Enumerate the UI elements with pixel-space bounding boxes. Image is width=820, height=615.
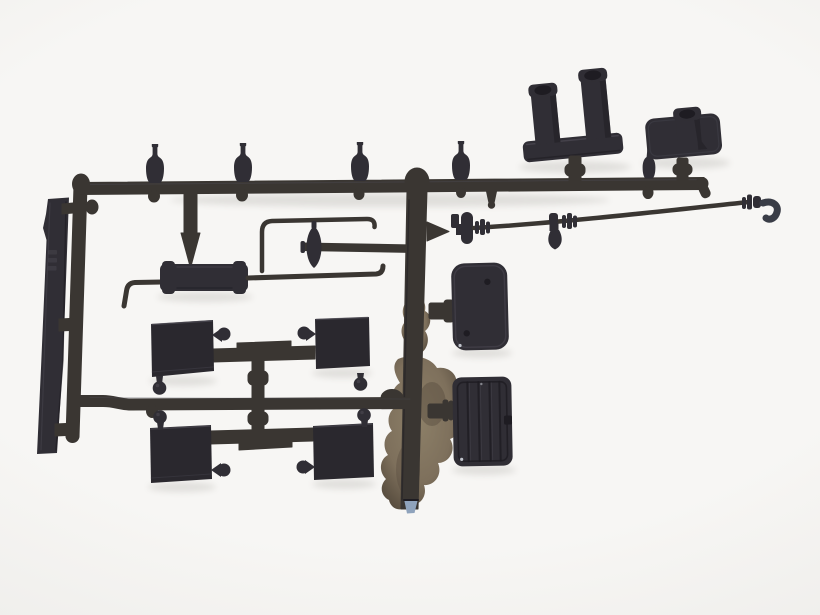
mid-assembly — [124, 219, 415, 306]
runner-left-knob — [73, 174, 90, 194]
single-post-mount — [644, 105, 723, 160]
teardrop-knobs — [211, 460, 315, 477]
photo-model-kit-sprue: Photograph of a dark grey injection-moul… — [0, 0, 820, 615]
strip-tab-top — [62, 202, 84, 214]
side-notch — [504, 415, 512, 424]
strip-tab-bottom — [55, 423, 77, 436]
straight-rod — [248, 266, 383, 278]
ring-coupler-b — [562, 213, 577, 229]
ring-coupler-a — [475, 219, 490, 235]
mudflap-plate-left — [151, 320, 214, 377]
bar-ridge — [237, 341, 291, 351]
mudflap-pair-upper — [151, 317, 370, 399]
sprue-photo-canvas: Photograph of a dark grey injection-moul… — [0, 0, 820, 615]
gate-bulge — [248, 371, 268, 385]
runner-dome-head — [405, 168, 429, 196]
mudflap-plate-left — [150, 425, 212, 483]
teardrop-knobs — [212, 327, 316, 343]
thin-rod — [474, 202, 749, 228]
runner-knob — [86, 200, 98, 214]
teardrop-coupler — [548, 213, 561, 250]
elbow-tip — [763, 202, 777, 219]
twin-post-mount — [516, 67, 624, 163]
air-tank — [160, 261, 248, 294]
mudflap-pair-lower — [150, 405, 374, 483]
spear-gate — [427, 222, 449, 241]
mudflap-plate-right — [315, 317, 370, 369]
mudflap-plate-right — [313, 423, 374, 480]
strip-tab-mid — [59, 318, 80, 331]
smooth-box-connector — [429, 300, 454, 322]
spear-gate-runner — [181, 190, 200, 268]
embossed-marks — [48, 250, 58, 271]
cross-fitting — [301, 221, 416, 268]
flanged-coupler — [451, 212, 473, 244]
bent-pipe — [124, 282, 162, 306]
ring-coupler-end — [742, 195, 761, 210]
smooth-box — [429, 262, 509, 350]
gate-bulge — [248, 412, 268, 425]
cut-tip — [404, 499, 418, 514]
